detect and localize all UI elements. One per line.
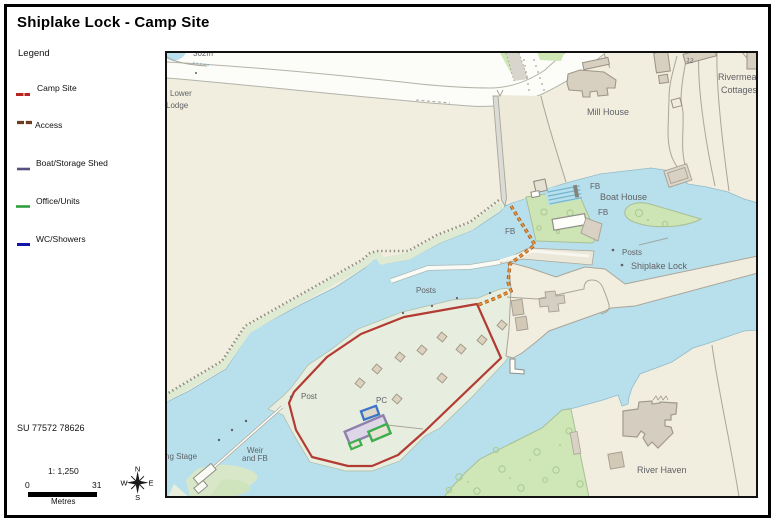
svg-text:Cottages: Cottages — [721, 85, 756, 95]
svg-text:FB: FB — [505, 227, 515, 236]
svg-text:River Haven: River Haven — [637, 465, 687, 475]
svg-text:FB: FB — [598, 208, 608, 217]
svg-text:and FB: and FB — [242, 454, 268, 463]
svg-text:Boat House: Boat House — [600, 192, 647, 202]
svg-text:Post: Post — [301, 392, 318, 401]
svg-text:12: 12 — [686, 57, 695, 65]
svg-text:W: W — [120, 479, 128, 488]
svg-text:302m: 302m — [193, 53, 213, 58]
svg-text:Posts: Posts — [416, 286, 436, 295]
svg-text:Shiplake Lock: Shiplake Lock — [631, 261, 688, 271]
svg-text:FB: FB — [590, 182, 600, 191]
svg-text:S: S — [135, 493, 140, 502]
svg-text:Lower: Lower — [170, 89, 192, 98]
svg-text:ng Stage: ng Stage — [167, 452, 198, 461]
svg-text:Lodge: Lodge — [167, 101, 189, 110]
svg-text:E: E — [148, 479, 153, 488]
svg-text:Rivermead: Rivermead — [718, 72, 756, 82]
svg-text:Posts: Posts — [622, 248, 642, 257]
svg-text:PC: PC — [376, 396, 387, 405]
svg-text:Mill House: Mill House — [587, 107, 629, 117]
